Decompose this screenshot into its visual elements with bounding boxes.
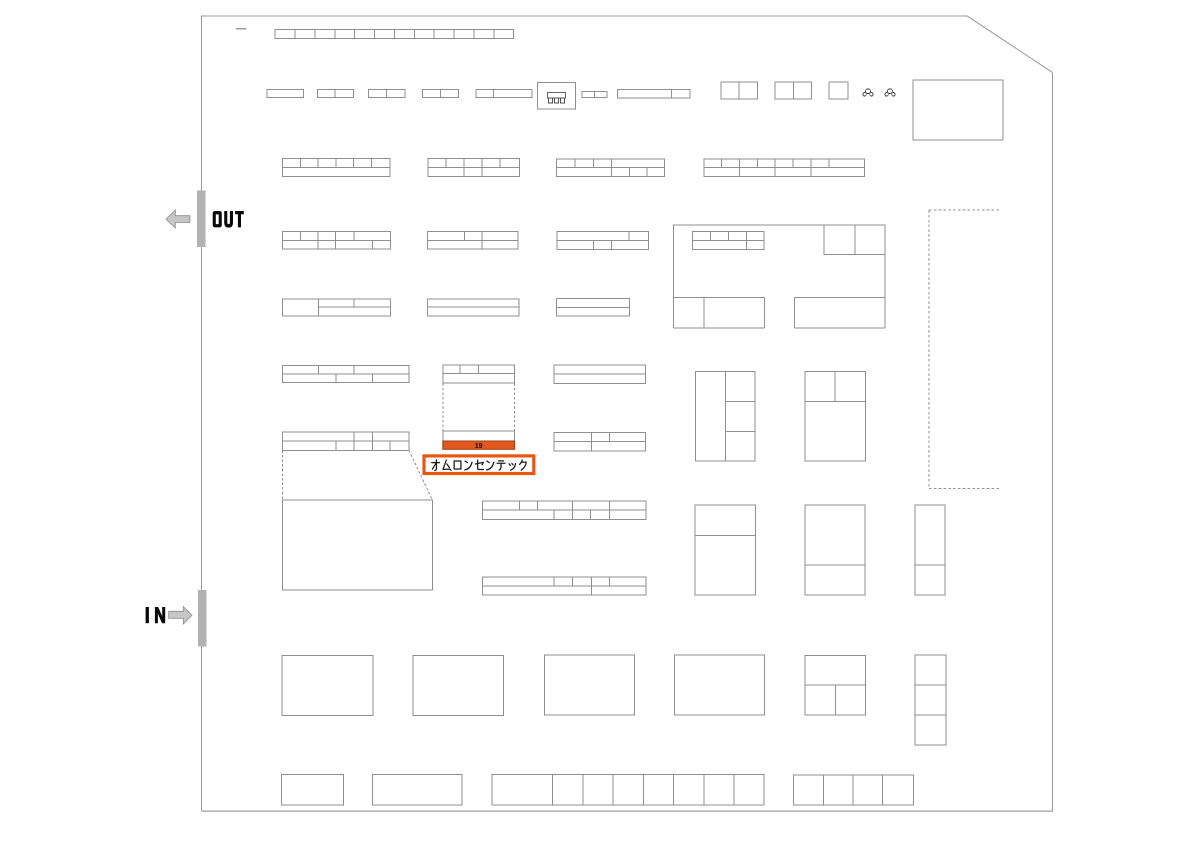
svg-text:19: 19 [475,443,483,450]
